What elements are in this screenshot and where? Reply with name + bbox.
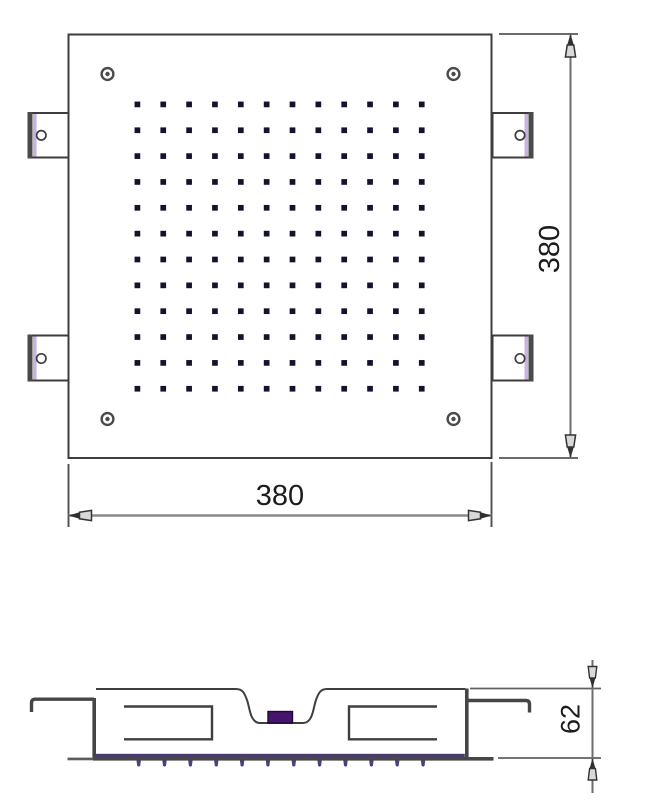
svg-text:62: 62	[556, 704, 586, 734]
svg-text:380: 380	[256, 480, 304, 512]
svg-text:380: 380	[534, 225, 566, 273]
